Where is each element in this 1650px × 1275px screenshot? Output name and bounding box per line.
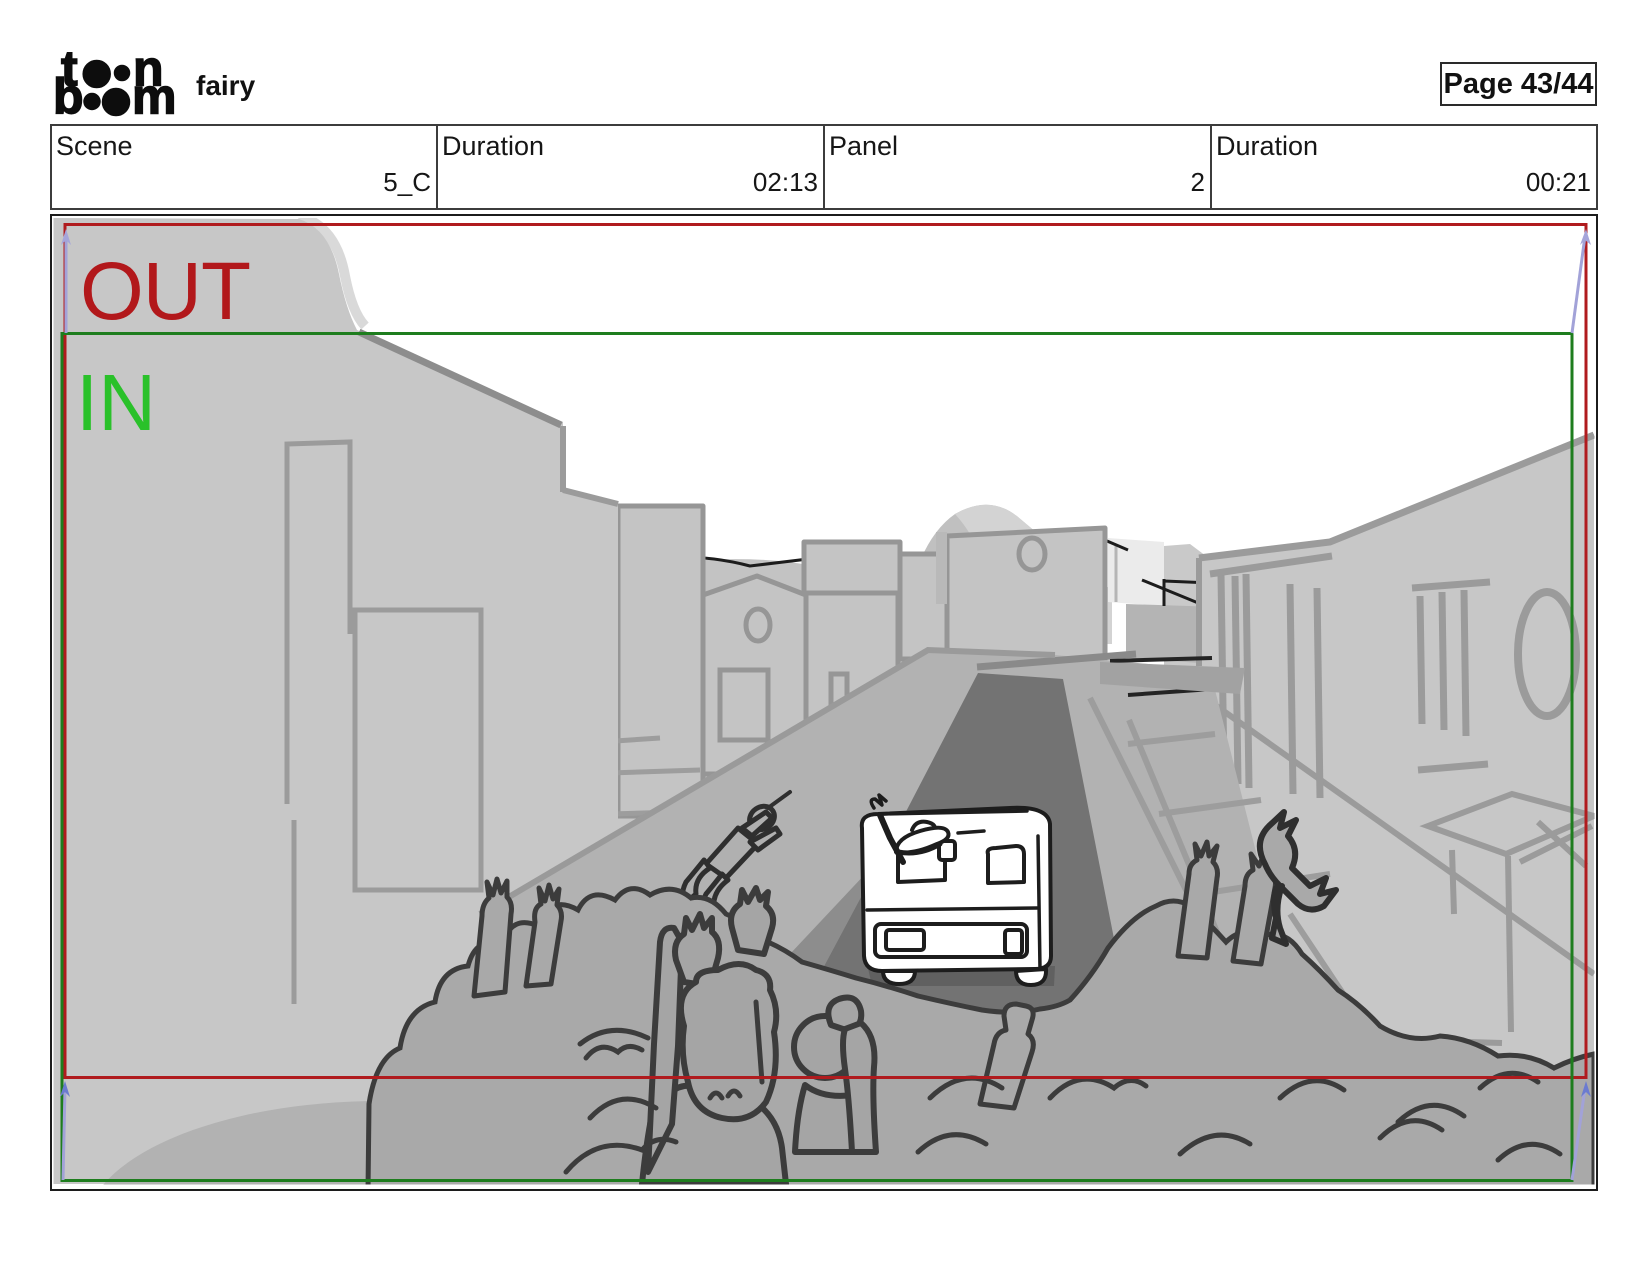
svg-text:OUT: OUT [80,246,250,337]
svg-text:m: m [132,69,176,119]
svg-text:IN: IN [76,358,156,447]
svg-text:b: b [53,69,84,119]
